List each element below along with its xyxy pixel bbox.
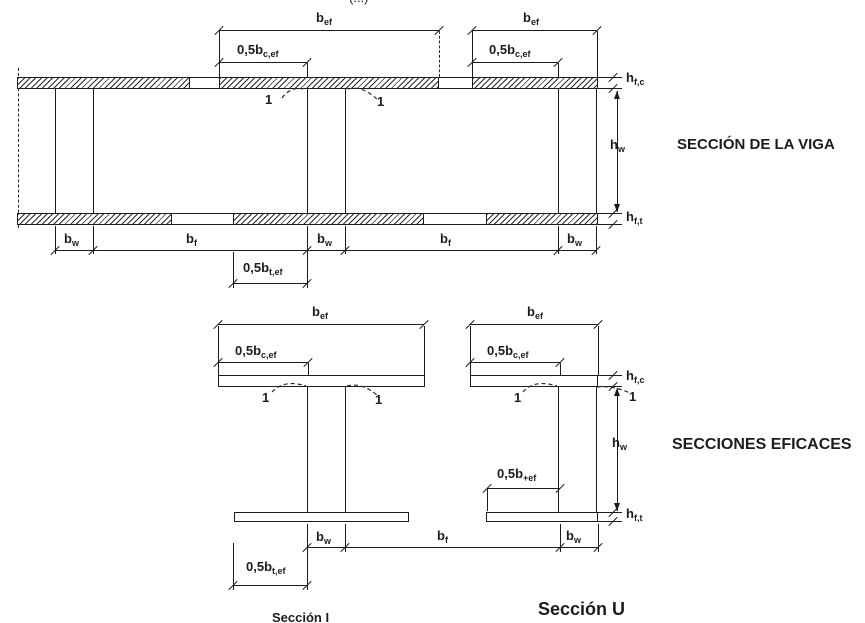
beam-bottom-flange-hatch-right — [486, 213, 598, 225]
note-1-u-left: 1 — [514, 391, 521, 405]
dim-line-bef-u — [470, 324, 598, 325]
dim-label-bef-u: bef — [527, 305, 543, 319]
dim-label-hft-u: hf,t — [626, 507, 642, 521]
dim-line-btef-lower — [233, 585, 307, 586]
dim-line-bef-i — [218, 324, 424, 325]
dim-label-bw-lower-1: bw — [316, 530, 331, 544]
dim-label-bw-2: bw — [317, 232, 332, 246]
section-u-label: Sección U — [538, 599, 625, 620]
ext-line — [560, 363, 561, 375]
ext-line — [307, 63, 308, 77]
u-section-web — [558, 386, 597, 513]
dim-label-bpef-u: 0,5b+ef — [497, 467, 536, 481]
leader-curve — [348, 88, 378, 100]
note-1-i-left: 1 — [262, 391, 269, 405]
dim-line-bw-bf-row — [55, 250, 596, 251]
ext-line — [307, 226, 308, 288]
i-section-web — [307, 386, 346, 513]
symmetry-centerline — [18, 68, 19, 228]
dim-label-bw-3: bw — [567, 232, 582, 246]
dim-label-hfc-u: hf,c — [626, 369, 644, 383]
ext-line — [219, 31, 220, 77]
effective-sections-title: SECCIONES EFICACES — [672, 436, 852, 454]
dim-label-bf-1: bf — [186, 232, 197, 246]
dim-line-bcef-u — [470, 362, 560, 363]
arrow-up — [614, 388, 620, 396]
ext-line — [470, 326, 471, 375]
dim-label-hw-beam: hw — [610, 138, 625, 152]
dim-label-bcef-beam-right: 0,5bc,ef — [489, 43, 531, 57]
dim-label-bcef-beam-center: 0,5bc,ef — [237, 43, 279, 57]
dim-line-bw-bf-row-lower — [307, 547, 598, 548]
beam-bottom-flange-hatch-center — [233, 213, 424, 225]
dim-label-bf-2: bf — [440, 232, 451, 246]
dim-label-bcef-u: 0,5bc,ef — [487, 344, 529, 358]
dim-line-bef-center — [219, 30, 439, 31]
dim-line-bef-right — [472, 30, 597, 31]
beam-web-3 — [558, 88, 597, 214]
leader-curves — [0, 0, 865, 623]
ext-line — [597, 31, 598, 77]
ext-line — [307, 524, 308, 590]
dim-label-bef-beam-right: bef — [523, 11, 539, 25]
section-i-label: Sección I — [272, 610, 329, 623]
dim-label-hft-beam: hf,t — [626, 210, 642, 224]
dim-line-bpef-u — [487, 488, 560, 489]
leader-curve — [282, 88, 303, 98]
beam-web-2 — [307, 88, 346, 214]
ext-line — [424, 326, 425, 375]
ext-line — [598, 326, 599, 375]
beam-top-flange-hatch-left — [17, 77, 190, 89]
dim-label-btef-lower: 0,5bt,ef — [246, 560, 286, 574]
beam-web-1 — [55, 88, 94, 214]
beam-sections-diagram: (...) — [0, 0, 865, 623]
ext-line — [558, 63, 559, 77]
dim-label-bcef-i: 0,5bc,ef — [235, 344, 277, 358]
dim-line-bcef-i — [218, 362, 308, 363]
note-1-i-right: 1 — [375, 393, 382, 407]
ext-line — [487, 489, 488, 511]
ext-line — [472, 31, 473, 77]
beam-section-title: SECCIÓN DE LA VIGA — [677, 136, 835, 153]
note-1-beam-left: 1 — [265, 93, 272, 107]
dim-label-hw-u: hw — [612, 436, 627, 450]
ext-line — [218, 326, 219, 375]
dim-label-bw-1: bw — [64, 232, 79, 246]
dim-label-bef-beam-center: bef — [316, 11, 332, 25]
beam-bottom-flange-hatch-left — [17, 213, 172, 225]
dim-label-hfc-beam: hf,c — [626, 71, 644, 85]
ext-line-dashed — [439, 31, 440, 77]
dim-line-bcef-center — [219, 62, 307, 63]
dim-label-btef-beam: 0,5bt,ef — [243, 261, 283, 275]
u-section-bottom-flange — [486, 512, 598, 522]
i-section-bottom-flange — [234, 512, 409, 522]
note-1-beam-right: 1 — [377, 95, 384, 109]
arrow-up — [614, 91, 620, 99]
note-1-u-right: 1 — [629, 390, 636, 404]
cropped-caption-fragment: (...) — [349, 0, 369, 5]
dim-label-bef-i: bef — [312, 305, 328, 319]
dim-line-btef-beam — [233, 283, 307, 284]
dim-label-bf-lower: bf — [437, 529, 448, 543]
dim-line-bcef-right — [472, 62, 558, 63]
ext-line — [308, 363, 309, 375]
dim-label-bw-lower-2: bw — [566, 529, 581, 543]
